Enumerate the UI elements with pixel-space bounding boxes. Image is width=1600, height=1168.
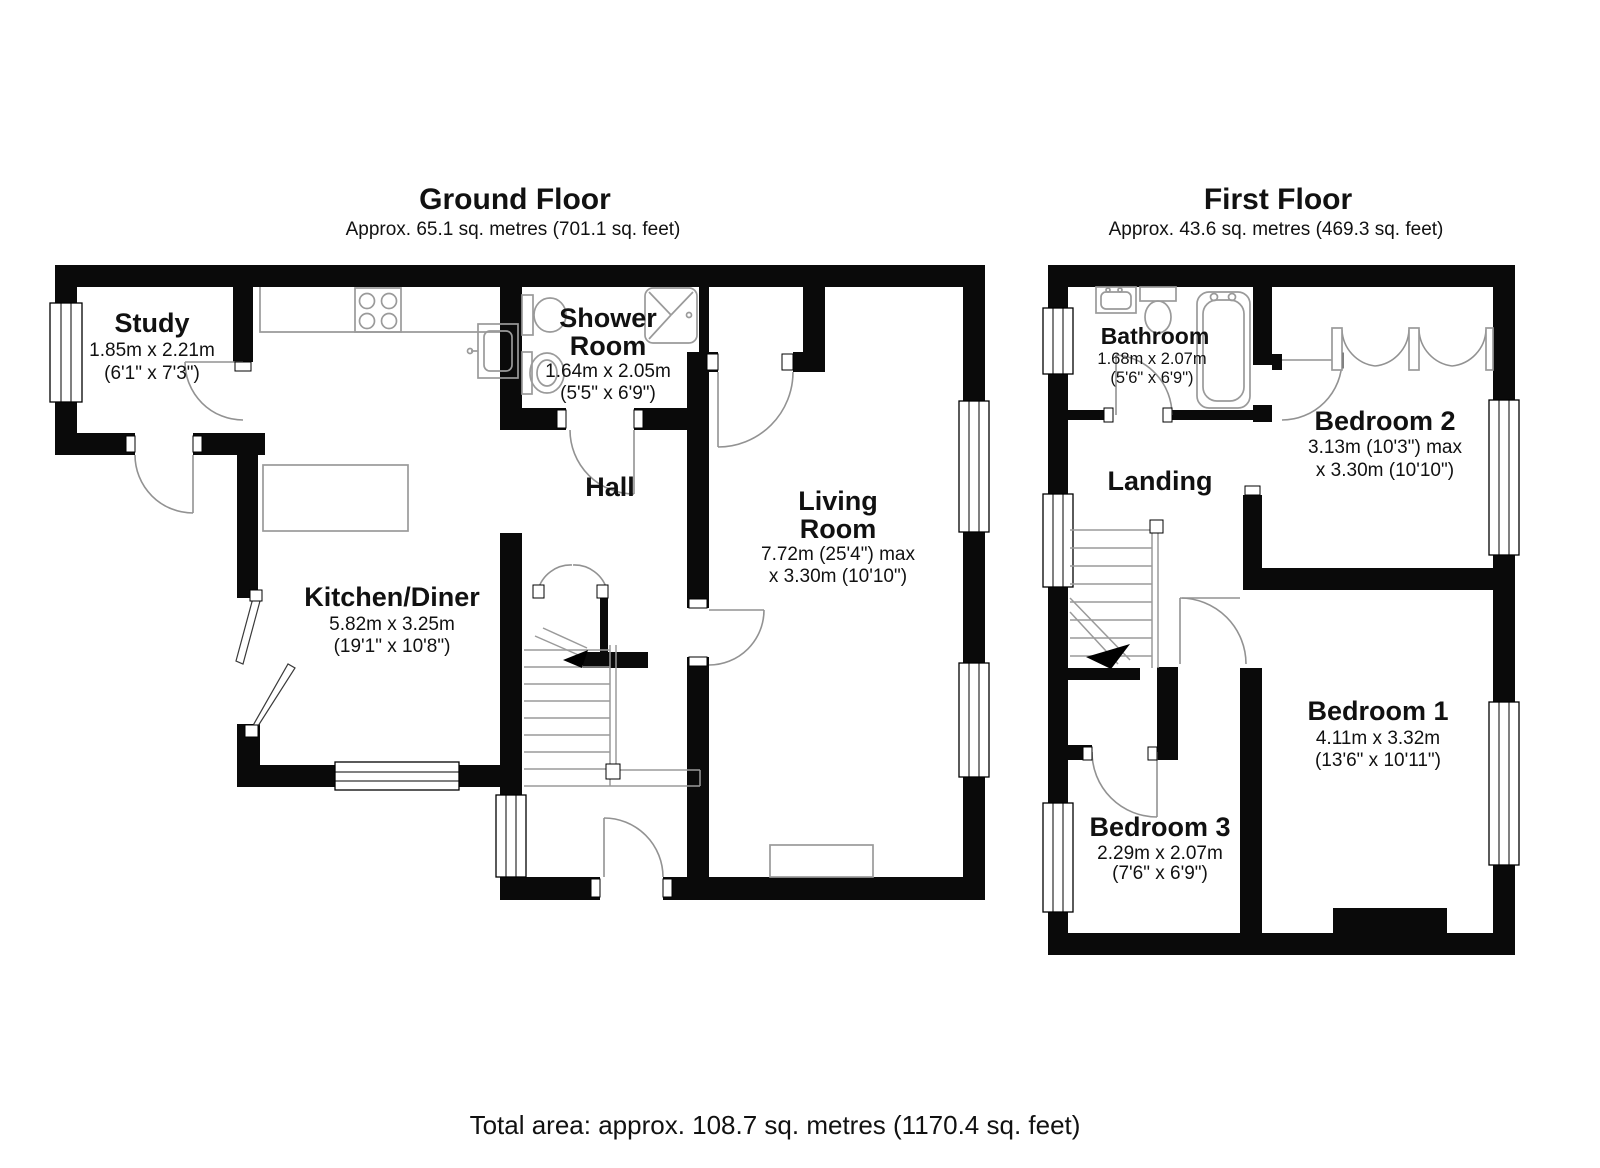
room-label-bedroom1: Bedroom 1	[1307, 696, 1448, 726]
study-window	[50, 303, 82, 402]
room-label-living-2: Room	[800, 514, 877, 544]
room-dims-bedroom1-imperial: (13'6" x 10'11")	[1315, 750, 1441, 771]
wardrobe-icon	[1332, 328, 1493, 370]
living-room-window-1	[959, 401, 989, 532]
room-dims-kitchen-imperial: (19'1" x 10'8")	[334, 636, 451, 657]
room-dims-study-imperial: (6'1" x 7'3")	[104, 363, 200, 384]
room-dims-bathroom-metric: 1.68m x 2.07m	[1097, 350, 1206, 368]
room-dims-bedroom3-metric: 2.29m x 2.07m	[1097, 843, 1223, 864]
room-label-bedroom3: Bedroom 3	[1089, 812, 1230, 842]
bedroom3-door	[1083, 747, 1157, 817]
bathroom-window	[1043, 308, 1073, 374]
room-dims-bedroom2-metric2: x 3.30m (10'10")	[1316, 460, 1454, 481]
room-dims-kitchen-metric: 5.82m x 3.25m	[329, 614, 455, 635]
hob-icon	[355, 288, 401, 332]
total-area-text: Total area: approx. 108.7 sq. metres (11…	[470, 1110, 1081, 1140]
room-label-bathroom: Bathroom	[1101, 323, 1210, 349]
living-room-top-door	[707, 354, 793, 447]
living-room-window-2	[959, 663, 989, 777]
room-label-hall: Hall	[585, 472, 635, 502]
room-label-landing: Landing	[1108, 466, 1213, 496]
room-dims-bedroom2-metric: 3.13m (10'3") max	[1308, 437, 1462, 458]
front-door	[591, 818, 672, 897]
floorplan-page: Ground Floor Approx. 65.1 sq. metres (70…	[0, 0, 1600, 1163]
room-dims-bedroom1-metric: 4.11m x 3.32m	[1316, 728, 1440, 749]
study-bottom-door	[126, 436, 202, 513]
cupboard-double-doors	[533, 565, 608, 598]
room-label-kitchen: Kitchen/Diner	[304, 582, 480, 612]
hearth	[770, 845, 873, 877]
chimney-breast	[1333, 908, 1447, 935]
room-label-study: Study	[114, 308, 189, 338]
living-room-hall-door	[689, 599, 764, 666]
room-dims-living-metric: 7.72m (25'4") max	[761, 544, 915, 565]
room-label-shower-1: Shower	[559, 303, 657, 333]
room-dims-study-metric: 1.85m x 2.21m	[89, 340, 215, 361]
first-floor-subtitle: Approx. 43.6 sq. metres (469.3 sq. feet)	[1109, 219, 1444, 240]
stairs-first	[1070, 520, 1163, 669]
kitchen-window	[335, 762, 459, 790]
kitchen-counter	[260, 287, 500, 332]
room-dims-bathroom-imperial: (5'6" x 6'9")	[1110, 369, 1193, 387]
bedroom3-window	[1043, 803, 1073, 912]
first-floor-title: First Floor	[1204, 183, 1353, 216]
floorplan-svg: Ground Floor Approx. 65.1 sq. metres (70…	[0, 0, 1600, 1163]
stairs-ground	[524, 628, 700, 786]
room-label-bedroom2: Bedroom 2	[1314, 406, 1455, 436]
room-dims-shower-metric: 1.64m x 2.05m	[545, 361, 671, 382]
room-dims-shower-imperial: (5'5" x 6'9")	[560, 383, 656, 404]
patio-doors-open	[236, 590, 295, 737]
bedroom2-window	[1489, 400, 1519, 555]
bathroom-sink-icon	[1096, 287, 1136, 313]
bedroom1-window	[1489, 702, 1519, 865]
first-floor-labels: Bathroom 1.68m x 2.07m (5'6" x 6'9") Bed…	[1089, 323, 1462, 884]
room-label-shower-2: Room	[570, 331, 647, 361]
ground-floor-title: Ground Floor	[419, 183, 611, 216]
bedroom1-door	[1180, 598, 1246, 664]
hall-window	[496, 795, 526, 877]
room-dims-living-metric2: x 3.30m (10'10")	[769, 566, 907, 587]
ground-floor-plan: Ground Floor Approx. 65.1 sq. metres (70…	[50, 183, 989, 900]
kitchen-island	[263, 465, 408, 531]
first-floor-plan: First Floor Approx. 43.6 sq. metres (469…	[1043, 183, 1519, 955]
landing-window	[1043, 494, 1073, 587]
room-dims-bedroom3-imperial: (7'6" x 6'9")	[1112, 863, 1208, 884]
ground-floor-subtitle: Approx. 65.1 sq. metres (701.1 sq. feet)	[346, 219, 681, 240]
room-label-living-1: Living	[798, 486, 878, 516]
